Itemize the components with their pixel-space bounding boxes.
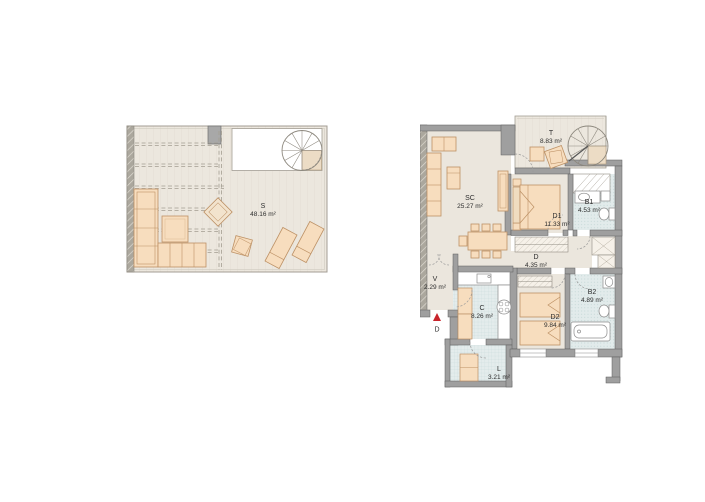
wardrobe <box>515 237 568 252</box>
washbasin <box>605 278 613 287</box>
room-area: 3.21 m² <box>488 374 510 382</box>
room-label-d2: D2 9.84 m² <box>544 314 566 330</box>
room-label-d: D 4.35 m² <box>525 254 547 270</box>
room-code: B1 <box>578 199 600 207</box>
room-code: D <box>525 254 547 262</box>
room-code: S <box>250 203 276 211</box>
room-code: B2 <box>581 289 603 297</box>
room-label-l: L 3.21 m² <box>488 366 510 382</box>
room-code: T <box>540 130 562 138</box>
room-area: 8.83 m² <box>540 138 562 146</box>
tv-sideboard <box>498 171 508 211</box>
room-area: 4.53 m² <box>578 207 600 215</box>
apartment-floor-plan <box>420 111 640 393</box>
room-label-b2: B2 4.89 m² <box>581 289 603 305</box>
toilet-icon <box>599 305 609 317</box>
room-label-sc: SC 25.27 m² <box>457 195 483 211</box>
room-label-s: S 48.16 m² <box>250 203 276 219</box>
room-label-b1: B1 4.53 m² <box>578 199 600 215</box>
toilet-tank <box>609 208 615 220</box>
hall-closet <box>592 237 615 268</box>
spiral-staircase-icon <box>282 131 322 171</box>
room-code: D1 <box>544 213 569 221</box>
toilet-icon <box>599 208 609 220</box>
pillar <box>501 125 515 155</box>
room-code: V <box>424 276 446 284</box>
room-label-d1: D1 11.33 m² <box>544 213 569 229</box>
headboard <box>513 187 520 223</box>
coffee-table <box>162 216 188 242</box>
room-code: L <box>488 366 510 374</box>
room-area: 11.33 m² <box>544 221 569 229</box>
room-code: D2 <box>544 314 566 322</box>
terrace-table <box>530 147 544 161</box>
terrace-floor-plan <box>125 124 329 274</box>
laundry-cabinet <box>460 354 478 381</box>
armchair <box>447 167 460 189</box>
bath-cabinet <box>601 191 610 201</box>
room-area: 9.84 m² <box>544 322 566 330</box>
wardrobe <box>518 276 552 287</box>
kitchen-cabinet <box>458 314 472 339</box>
room-label-v: V 2.29 m² <box>424 276 446 292</box>
stove <box>497 300 511 314</box>
room-code: SC <box>457 195 483 203</box>
stair-under-closet <box>573 174 610 193</box>
room-area: 8.26 m² <box>471 313 493 321</box>
room-area: 48.16 m² <box>250 211 276 219</box>
room-area: 4.89 m² <box>581 297 603 305</box>
room-area: 25.27 m² <box>457 203 483 211</box>
room-label-c: C 8.26 m² <box>471 305 493 321</box>
spiral-staircase-icon <box>568 126 608 166</box>
room-code: C <box>471 305 493 313</box>
kitchen-cabinet <box>458 288 472 314</box>
entrance-label: D <box>434 327 439 334</box>
party-wall <box>127 126 134 272</box>
entrance-arrow <box>433 313 441 321</box>
room-area: 4.35 m² <box>525 262 547 270</box>
toilet-tank <box>609 305 615 318</box>
room-label-t: T 8.83 m² <box>540 130 562 146</box>
room-area: 2.29 m² <box>424 284 446 292</box>
